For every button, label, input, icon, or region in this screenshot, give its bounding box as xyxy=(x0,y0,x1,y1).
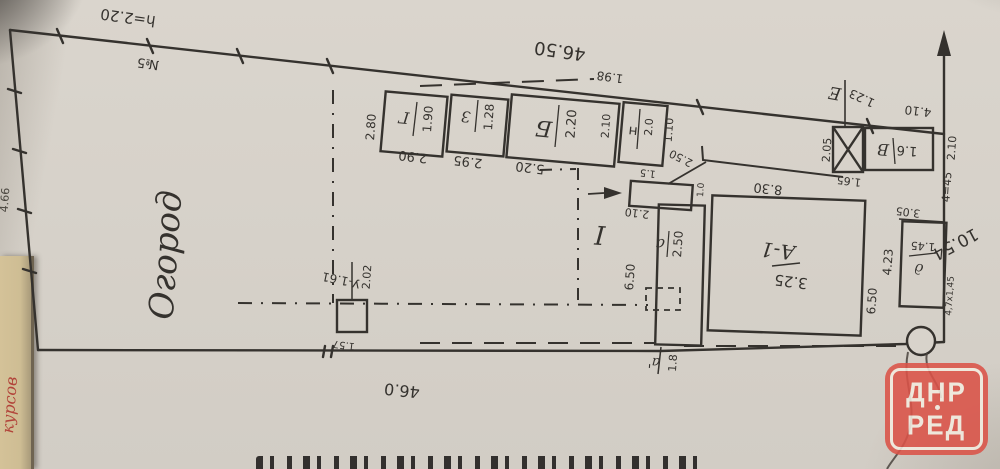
annex-aprime-label: а' xyxy=(647,355,660,370)
annex-a-outline xyxy=(655,204,705,345)
house-a1-outline xyxy=(708,195,866,335)
structure-d-label: д xyxy=(914,261,924,276)
dim-4-23: 4.23 xyxy=(881,248,895,275)
dim-4-10: 4.10 xyxy=(904,103,932,118)
dim-3-05: 3.05 xyxy=(895,205,921,219)
annex-a-label: а xyxy=(655,236,666,253)
watermark-frame: ДНР РЕД xyxy=(890,368,983,450)
dim-8-30: 8.30 xyxy=(753,180,783,196)
entrance-arrow xyxy=(604,187,622,199)
dashdot-horizontal xyxy=(238,303,648,305)
annex-aprime-size: 1.8 xyxy=(667,354,679,372)
watermark-line2: РЕД xyxy=(907,409,966,442)
dim-6-50-annex: 6.50 xyxy=(623,263,637,290)
side-red-note: курсов xyxy=(0,376,20,434)
annex-aprime-dashed xyxy=(646,288,680,310)
watermark-logo: ДНР РЕД xyxy=(885,363,988,455)
cut-off-bottom-text xyxy=(256,456,706,469)
porch-size: 1.5 xyxy=(639,166,656,178)
dim-5-20: 5.20 xyxy=(515,159,545,175)
section-marker: I xyxy=(594,221,606,248)
shed-g-label: Г xyxy=(398,108,410,125)
structure-d-size: 1.45 xyxy=(910,240,935,253)
shed-z-label: З xyxy=(461,108,472,124)
shed-b-size: 2.20 xyxy=(565,109,580,139)
garden-label: Огород xyxy=(145,189,188,320)
dim-2-05: 2.05 xyxy=(821,137,834,162)
dim-2-90: 2.90 xyxy=(398,148,428,164)
dim-6-50-house: 6.50 xyxy=(865,287,879,314)
left-edge-note: 4.66 xyxy=(0,187,11,212)
dim-2-10-chain: 2.10 xyxy=(946,135,959,160)
house-a1-label: А-1 xyxy=(760,239,797,263)
watermark-line1: ДНР xyxy=(906,376,967,409)
well-circle xyxy=(907,327,935,355)
dim-bottom-length: 46.0 xyxy=(383,380,420,400)
shed-b-label: Б xyxy=(535,115,553,139)
toilet-outline xyxy=(337,300,367,332)
dim-2-80: 2.80 xyxy=(364,113,378,140)
dim-2-10-annex: 2.10 xyxy=(624,206,650,220)
house-a1-height: 3.25 xyxy=(774,272,809,291)
toilet-dist: 2.02 xyxy=(361,264,374,289)
dim-1-65: 1.65 xyxy=(836,174,862,188)
annex-a-size: 2.50 xyxy=(671,230,685,257)
north-arrow-head xyxy=(937,30,951,56)
dim-4-45-chain: 4=45 xyxy=(940,172,953,203)
porch-width: 1.0 xyxy=(697,183,707,198)
plan-scan-page: h=2.20 №5 46.50 1.98 2.80 Г 1.90 З 1.28 … xyxy=(0,0,1000,469)
plot-number: №5 xyxy=(136,55,159,71)
shed-g-size: 1.90 xyxy=(421,105,435,132)
dim-2-10-gap: 2.10 xyxy=(600,113,613,138)
house-group xyxy=(588,146,865,374)
shed-v-size: 1.6 xyxy=(896,143,918,157)
shed-n-label: н xyxy=(628,124,639,139)
dim-2-95: 2.95 xyxy=(453,153,483,169)
shed-z-size: 1.28 xyxy=(482,103,496,130)
shed-n-size: 2.0 xyxy=(643,118,655,136)
dim-1-98: 1.98 xyxy=(596,69,624,85)
dim-1-57: 1.57 xyxy=(332,338,355,351)
watermark-dot xyxy=(935,405,940,410)
dim-1-10-gap: 1.10 xyxy=(663,117,676,142)
shed-v-label: В xyxy=(877,141,890,158)
boundary-left xyxy=(10,30,38,350)
